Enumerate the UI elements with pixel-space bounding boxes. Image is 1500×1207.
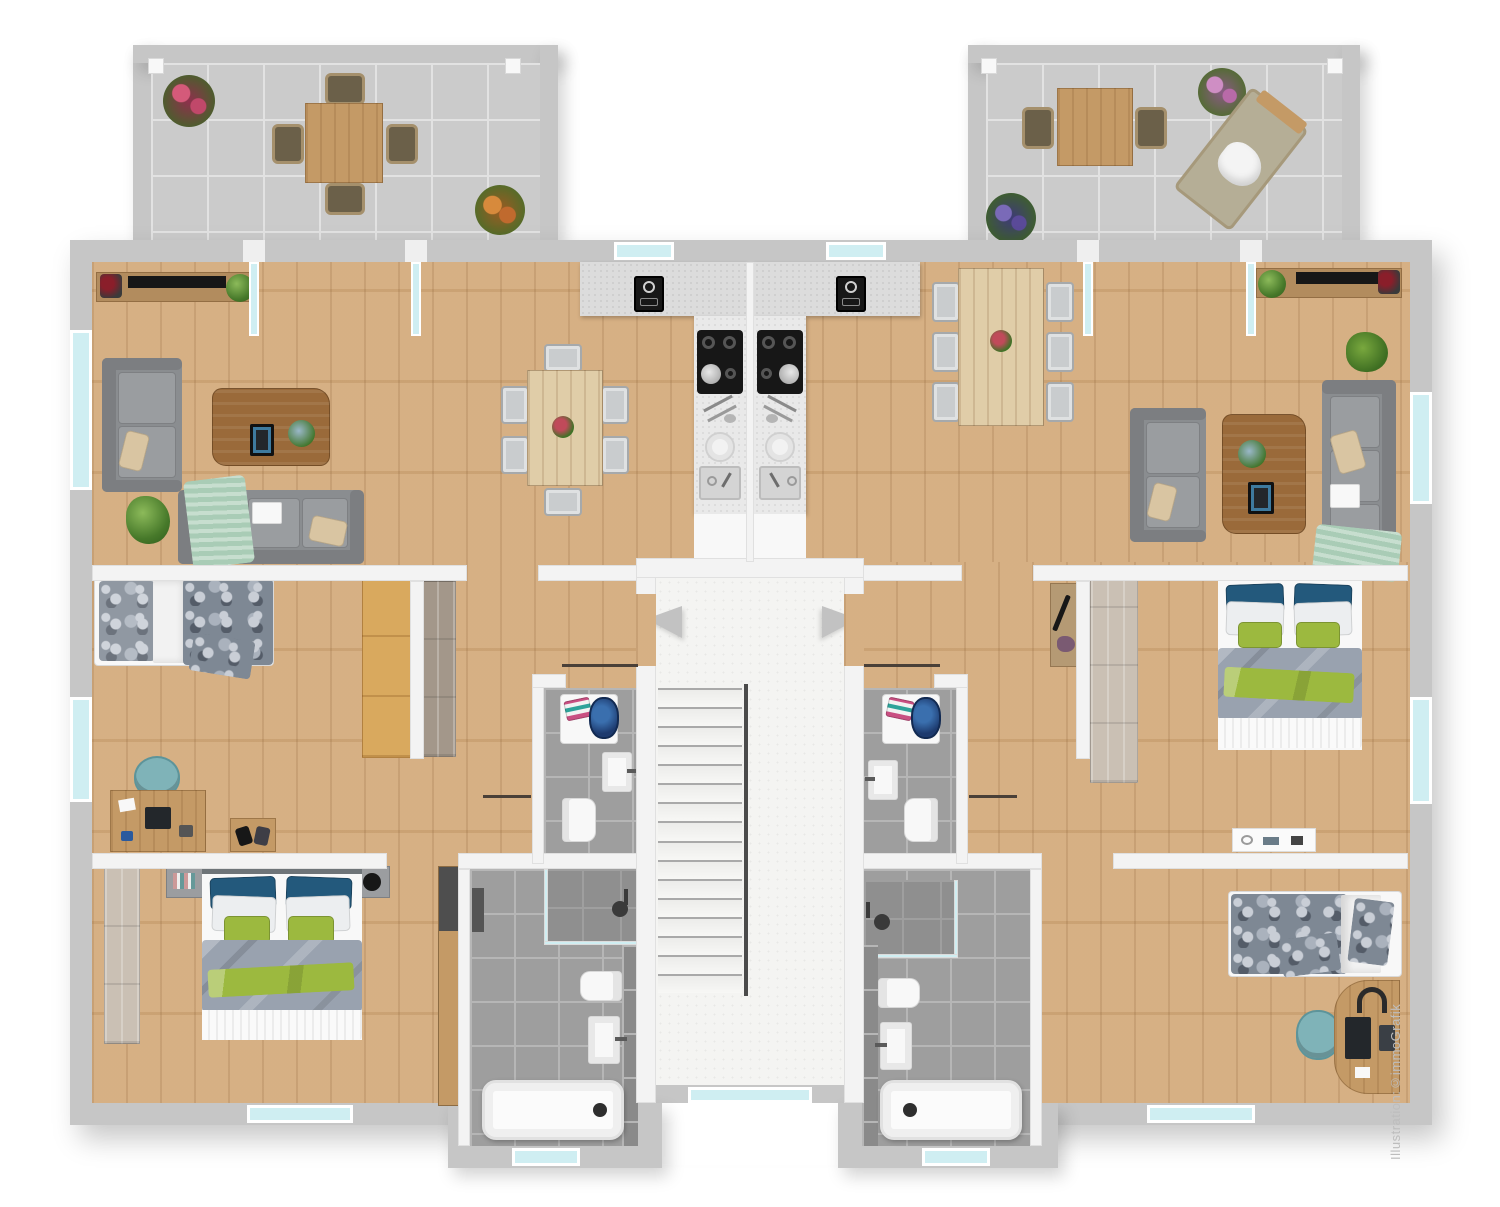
stair-tread bbox=[658, 802, 742, 821]
oven-icon bbox=[634, 276, 664, 312]
terrace-door-leaf bbox=[411, 262, 421, 336]
wall bbox=[1033, 565, 1408, 581]
floor-plan: Illustration:©immoGrafik bbox=[0, 0, 1500, 1207]
terrace-right-pillar bbox=[1327, 58, 1343, 74]
plant-purple bbox=[986, 193, 1036, 243]
flower-centerpiece-icon bbox=[552, 416, 574, 438]
vanity-table bbox=[1232, 828, 1316, 852]
hall-cabinet bbox=[420, 581, 456, 757]
single-bed bbox=[94, 576, 274, 666]
window bbox=[70, 697, 92, 802]
cooktop-icon bbox=[757, 330, 803, 394]
wardrobe bbox=[1090, 578, 1138, 783]
dining-chair bbox=[544, 488, 582, 516]
plant-icon bbox=[1258, 270, 1286, 298]
kitchen-window bbox=[614, 242, 674, 260]
stair-tread bbox=[658, 879, 742, 898]
wall bbox=[538, 565, 638, 581]
tv-icon bbox=[128, 276, 226, 288]
sofa-2seat bbox=[1130, 408, 1206, 542]
wall bbox=[410, 581, 424, 759]
tablet-icon bbox=[1248, 482, 1274, 514]
wardrobe bbox=[362, 578, 412, 758]
terrace-left-wall-right bbox=[540, 45, 558, 245]
stair-tread bbox=[658, 841, 742, 860]
stair-tread bbox=[658, 707, 742, 726]
floor-plant bbox=[126, 496, 170, 544]
door-leaf bbox=[864, 664, 940, 667]
tall-cabinet bbox=[438, 866, 460, 1106]
dining-chair bbox=[1046, 382, 1074, 422]
stair-tread bbox=[658, 898, 742, 917]
terrace-table bbox=[1057, 88, 1133, 166]
cooktop-icon bbox=[697, 330, 743, 394]
tablet-icon bbox=[250, 424, 274, 456]
toilet bbox=[878, 978, 920, 1008]
wall bbox=[862, 565, 962, 581]
flower-centerpiece-icon bbox=[990, 330, 1012, 352]
coffee-table bbox=[1222, 414, 1306, 534]
grass-plant bbox=[1346, 332, 1388, 372]
kitchen-left-base-cabinet bbox=[694, 514, 746, 562]
wall bbox=[862, 853, 1042, 869]
stair-tread bbox=[658, 764, 742, 783]
wall bbox=[92, 565, 467, 581]
window bbox=[70, 330, 92, 490]
wc-sink bbox=[868, 760, 898, 800]
wall bbox=[934, 674, 968, 688]
dining-chair bbox=[601, 386, 629, 424]
terrace-right-wall-right bbox=[1342, 45, 1360, 245]
terrace-door-leaf bbox=[1246, 262, 1256, 336]
shoe-bench bbox=[230, 818, 276, 852]
nightstand bbox=[166, 866, 204, 898]
shower bbox=[544, 869, 638, 945]
bathroom-window bbox=[922, 1148, 990, 1166]
window bbox=[1410, 392, 1432, 504]
terrace-left-pillar bbox=[505, 58, 521, 74]
stair-tread bbox=[658, 726, 742, 745]
door-leaf bbox=[483, 795, 531, 798]
terrace-chair bbox=[325, 73, 365, 105]
terrace-door-leaf bbox=[249, 262, 259, 336]
plant-icon bbox=[288, 420, 315, 447]
kitchen-utensils-icon bbox=[700, 398, 740, 428]
dining-chair bbox=[544, 344, 582, 372]
wall bbox=[1076, 581, 1090, 759]
window bbox=[1410, 697, 1432, 804]
staircase bbox=[658, 688, 742, 993]
kitchen-sink-icon bbox=[699, 466, 741, 500]
terrace-chair bbox=[272, 124, 304, 164]
window bbox=[1147, 1105, 1255, 1123]
stairwell-door-opening-left bbox=[636, 594, 656, 666]
wall bbox=[532, 674, 544, 864]
terrace-chair bbox=[1135, 107, 1167, 149]
decor-bottles-icon bbox=[100, 274, 122, 298]
terrace-chair bbox=[1022, 107, 1054, 149]
dining-chair bbox=[932, 282, 960, 322]
stair-handrail bbox=[744, 684, 748, 996]
kitchen-right-base-cabinet bbox=[754, 514, 806, 562]
oven-icon bbox=[836, 276, 866, 312]
headphones-icon bbox=[1357, 987, 1387, 1013]
lounger-towel bbox=[1211, 135, 1270, 194]
stairwell-window bbox=[688, 1087, 812, 1103]
shower bbox=[864, 880, 958, 958]
terrace-door-opening bbox=[405, 240, 427, 262]
stair-tread bbox=[658, 936, 742, 955]
double-bed bbox=[202, 864, 362, 1040]
dining-chair bbox=[932, 382, 960, 422]
wall bbox=[956, 674, 968, 864]
washing-machine bbox=[882, 694, 940, 744]
dining-chair bbox=[601, 436, 629, 474]
wall bbox=[92, 853, 387, 869]
plant-orange bbox=[475, 185, 525, 235]
kitchen-sink-icon bbox=[759, 466, 801, 500]
stair-tread bbox=[658, 688, 742, 707]
washing-machine bbox=[560, 694, 618, 744]
bath-sink bbox=[880, 1022, 912, 1070]
stair-tread bbox=[658, 974, 742, 993]
dining-chair bbox=[1046, 332, 1074, 372]
plant-icon bbox=[1238, 440, 1266, 468]
dining-chair bbox=[1046, 282, 1074, 322]
stair-tread bbox=[658, 745, 742, 764]
plant-red bbox=[163, 75, 215, 127]
terrace-right-pillar bbox=[981, 58, 997, 74]
bathtub bbox=[880, 1080, 1022, 1140]
bathtub bbox=[482, 1080, 624, 1140]
dining-chair bbox=[501, 436, 529, 474]
wardrobe bbox=[104, 866, 140, 1044]
door-leaf bbox=[562, 664, 638, 667]
stair-tread bbox=[658, 955, 742, 974]
stairwell-door-opening-right bbox=[844, 594, 864, 666]
terrace-door-opening bbox=[243, 240, 265, 262]
bath-sink bbox=[588, 1016, 620, 1064]
watermark: Illustration:©immoGrafik bbox=[1388, 975, 1403, 1160]
double-bed bbox=[1218, 576, 1362, 750]
wall bbox=[458, 853, 638, 869]
party-wall bbox=[746, 262, 754, 562]
stair-tread bbox=[658, 860, 742, 879]
wall bbox=[1030, 869, 1042, 1146]
terrace-right-wall-left bbox=[968, 45, 986, 245]
bathroom-window bbox=[512, 1148, 580, 1166]
stair-tread bbox=[658, 783, 742, 802]
toilet bbox=[580, 971, 622, 1001]
decor-bottles-icon bbox=[1378, 270, 1400, 294]
toilet bbox=[562, 798, 596, 842]
terrace-door-leaf bbox=[1083, 262, 1093, 336]
sofa-2seat bbox=[102, 358, 182, 492]
kitchen-window bbox=[826, 242, 886, 260]
plate-stack-icon bbox=[705, 432, 735, 462]
plate-stack-icon bbox=[765, 432, 795, 462]
terrace-chair bbox=[386, 124, 418, 164]
door-leaf bbox=[969, 795, 1017, 798]
terrace-left-wall-top bbox=[133, 45, 558, 63]
terrace-left-pillar bbox=[148, 58, 164, 74]
wall bbox=[532, 674, 566, 688]
dining-chair bbox=[932, 332, 960, 372]
terrace-table bbox=[305, 103, 383, 183]
wall bbox=[1113, 853, 1408, 869]
stair-tread bbox=[658, 917, 742, 936]
terrace-door-opening bbox=[1077, 240, 1099, 262]
terrace-left-wall-left bbox=[133, 45, 151, 245]
single-bed bbox=[1228, 891, 1402, 977]
terrace-right-wall-top bbox=[968, 45, 1360, 63]
throw-blanket bbox=[183, 475, 255, 570]
terrace-door-opening bbox=[1240, 240, 1262, 262]
stair-tread bbox=[658, 821, 742, 840]
kitchen-utensils-icon bbox=[762, 398, 802, 428]
toilet bbox=[904, 798, 938, 842]
wall bbox=[458, 869, 470, 1146]
window bbox=[247, 1105, 353, 1123]
bath-shelf bbox=[472, 888, 484, 932]
desk bbox=[110, 790, 206, 852]
dining-chair bbox=[501, 386, 529, 424]
wc-sink bbox=[602, 752, 632, 792]
exterior-cutout bbox=[658, 1103, 842, 1165]
terrace-chair bbox=[325, 183, 365, 215]
